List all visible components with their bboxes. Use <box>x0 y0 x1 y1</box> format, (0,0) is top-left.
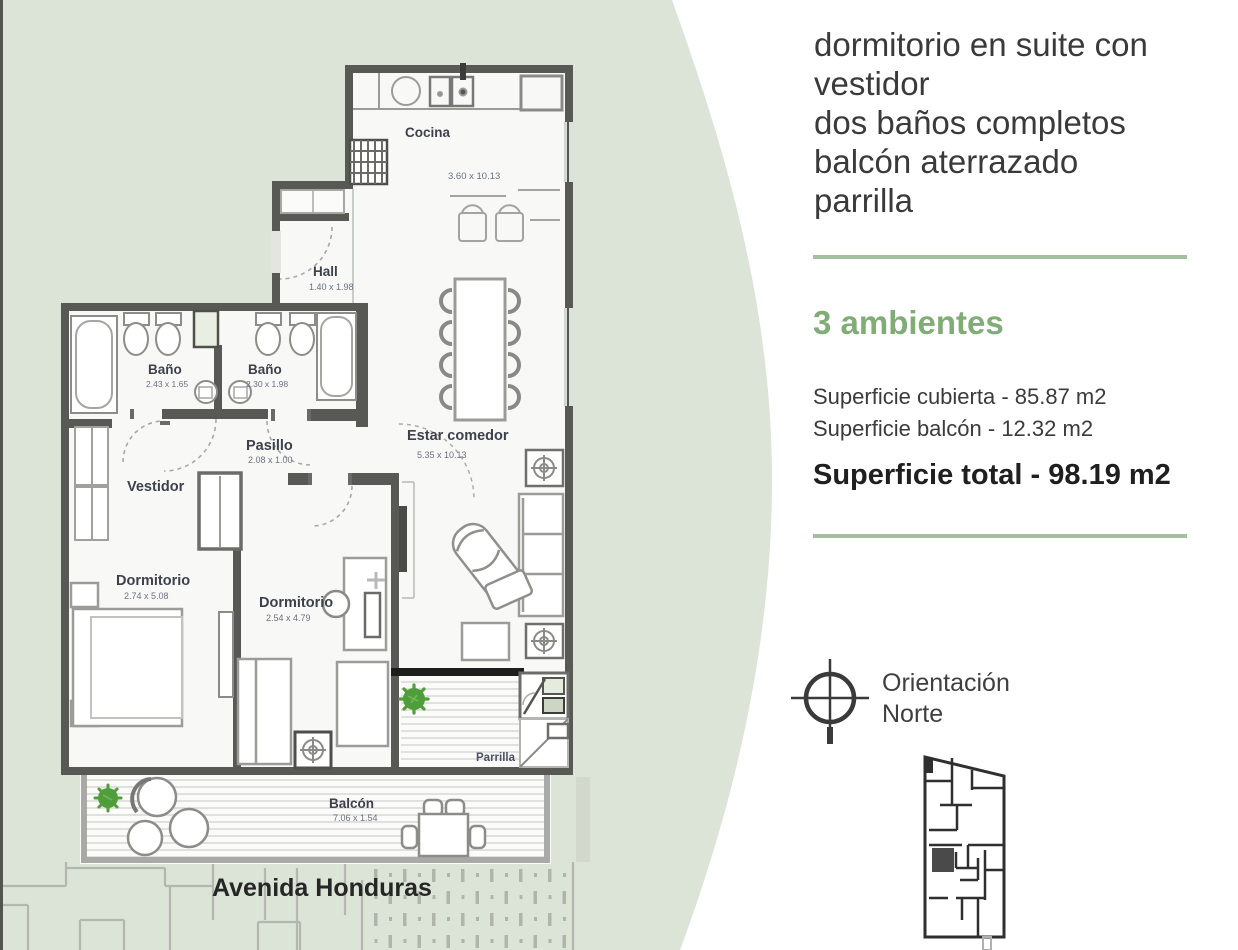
svg-text:Superficie balcón - 12.32 m2: Superficie balcón - 12.32 m2 <box>813 416 1093 441</box>
svg-text:vestidor: vestidor <box>814 65 930 102</box>
svg-text:Orientación: Orientación <box>882 669 1010 697</box>
svg-text:2.74 x 5.08: 2.74 x 5.08 <box>124 591 169 601</box>
svg-text:2.43 x 1.65: 2.43 x 1.65 <box>146 379 188 389</box>
svg-text:Cocina: Cocina <box>405 125 451 140</box>
svg-text:1.40 x 1.98: 1.40 x 1.98 <box>309 282 354 292</box>
svg-text:7.06 x 1.54: 7.06 x 1.54 <box>333 813 378 823</box>
svg-text:3 ambientes: 3 ambientes <box>813 304 1004 341</box>
svg-text:5.35 x 10.13: 5.35 x 10.13 <box>417 450 467 460</box>
svg-text:2.30 x 1.98: 2.30 x 1.98 <box>246 379 288 389</box>
svg-text:Dormitorio: Dormitorio <box>116 573 190 589</box>
svg-text:Dormitorio: Dormitorio <box>259 595 333 611</box>
svg-text:parrilla: parrilla <box>814 182 914 219</box>
svg-text:Superficie cubierta - 85.87 m2: Superficie cubierta - 85.87 m2 <box>813 384 1107 409</box>
svg-text:Superficie total - 98.19 m2: Superficie total - 98.19 m2 <box>813 459 1171 491</box>
svg-text:3.60 x 10.13: 3.60 x 10.13 <box>448 171 500 182</box>
svg-text:Baño: Baño <box>148 362 182 377</box>
svg-text:2.54 x 4.79: 2.54 x 4.79 <box>266 613 311 623</box>
svg-text:Avenida Honduras: Avenida Honduras <box>212 874 432 902</box>
svg-text:Baño: Baño <box>248 362 282 377</box>
svg-text:Estar comedor: Estar comedor <box>407 428 509 444</box>
svg-text:Norte: Norte <box>882 700 943 728</box>
svg-text:dos baños completos: dos baños completos <box>814 104 1126 141</box>
svg-text:Pasillo: Pasillo <box>246 438 293 454</box>
svg-text:Balcón: Balcón <box>329 796 374 811</box>
svg-text:Vestidor: Vestidor <box>127 479 185 495</box>
svg-text:Hall: Hall <box>313 264 338 279</box>
svg-text:2.08 x 1.00: 2.08 x 1.00 <box>248 455 293 465</box>
svg-text:Parrilla: Parrilla <box>476 752 516 764</box>
svg-text:dormitorio en suite con: dormitorio en suite con <box>814 26 1148 63</box>
svg-text:balcón aterrazado: balcón aterrazado <box>814 143 1078 180</box>
